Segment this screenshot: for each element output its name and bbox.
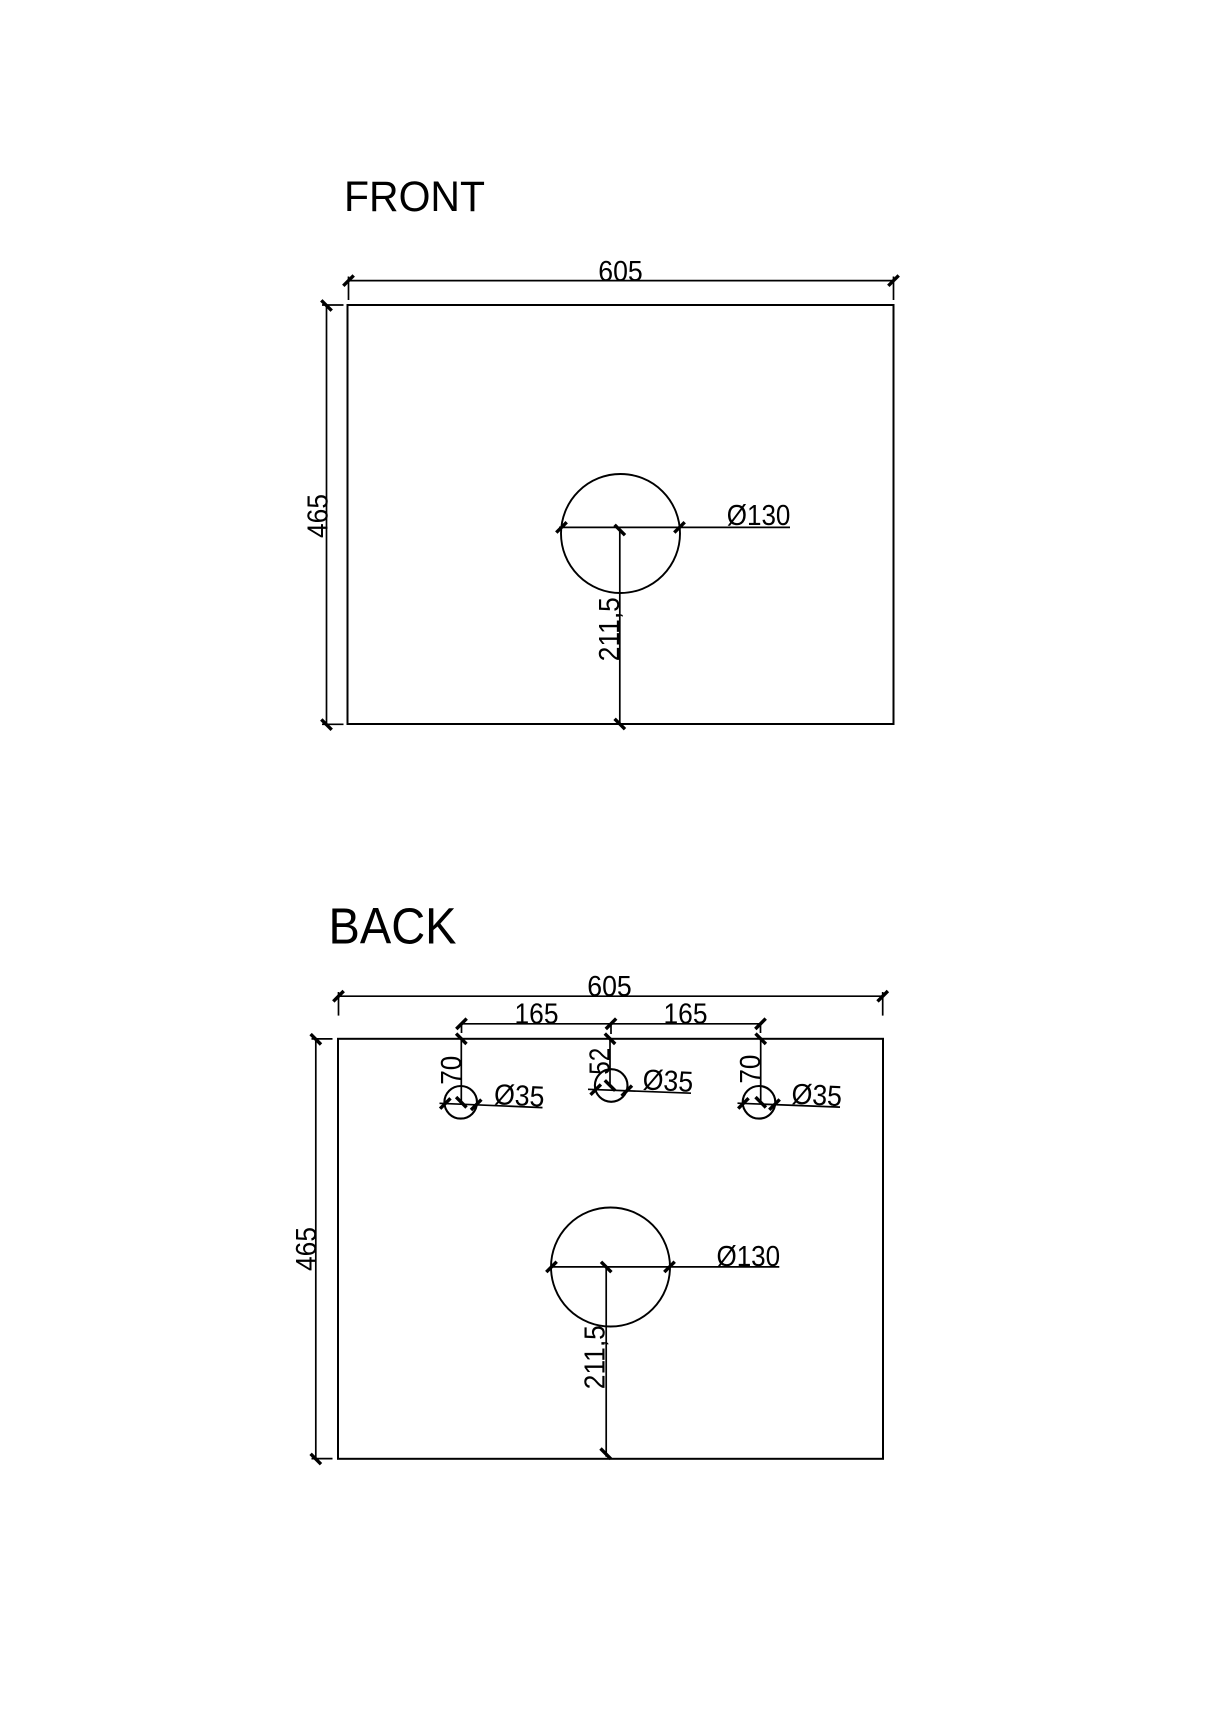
- svg-text:605: 605: [598, 256, 643, 288]
- svg-text:Ø35: Ø35: [493, 1079, 545, 1114]
- svg-text:465: 465: [291, 1227, 323, 1271]
- svg-text:BACK: BACK: [329, 898, 457, 955]
- svg-text:FRONT: FRONT: [344, 173, 485, 221]
- svg-text:165: 165: [664, 998, 708, 1030]
- svg-text:165: 165: [515, 998, 559, 1030]
- svg-text:Ø35: Ø35: [791, 1079, 843, 1114]
- svg-text:Ø130: Ø130: [727, 500, 791, 532]
- svg-text:605: 605: [587, 971, 632, 1003]
- svg-text:70: 70: [735, 1055, 767, 1084]
- svg-text:211,5: 211,5: [594, 597, 626, 661]
- svg-text:211,5: 211,5: [580, 1325, 612, 1389]
- svg-text:Ø130: Ø130: [717, 1241, 781, 1273]
- svg-text:52: 52: [584, 1048, 616, 1075]
- svg-text:465: 465: [302, 494, 334, 538]
- svg-text:Ø35: Ø35: [642, 1064, 694, 1099]
- svg-text:70: 70: [436, 1056, 468, 1085]
